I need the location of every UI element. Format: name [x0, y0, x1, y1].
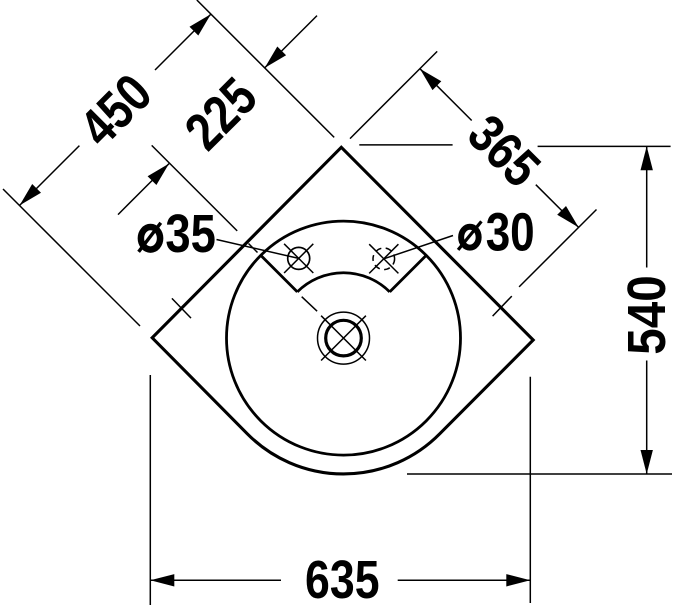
svg-text:30: 30 — [486, 204, 535, 263]
svg-text:540: 540 — [618, 275, 677, 355]
svg-text:635: 635 — [305, 551, 380, 609]
svg-text:35: 35 — [165, 205, 216, 264]
